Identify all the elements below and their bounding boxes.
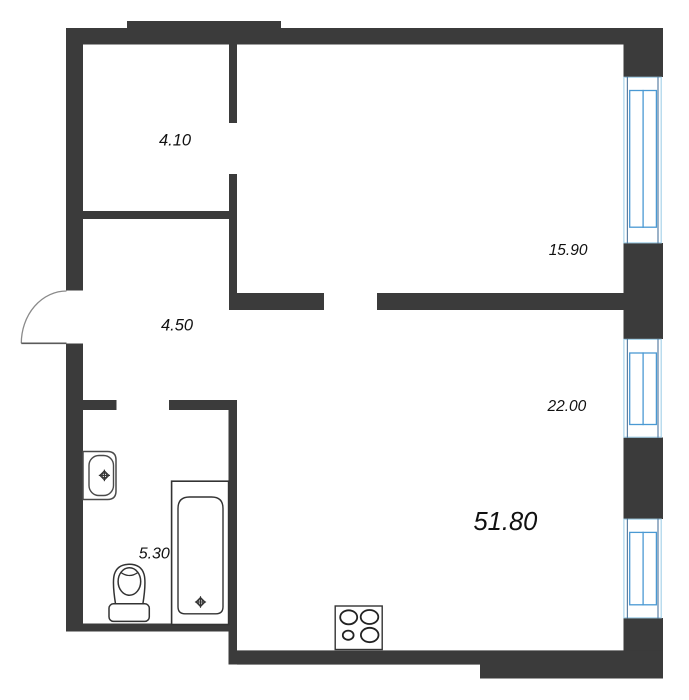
svg-text:22.00: 22.00 xyxy=(547,398,587,415)
svg-text:4.50: 4.50 xyxy=(161,316,194,334)
svg-text:15.90: 15.90 xyxy=(549,242,588,259)
svg-text:5.30: 5.30 xyxy=(139,546,170,563)
svg-text:4.10: 4.10 xyxy=(159,132,192,150)
svg-text:51.80: 51.80 xyxy=(474,508,538,536)
